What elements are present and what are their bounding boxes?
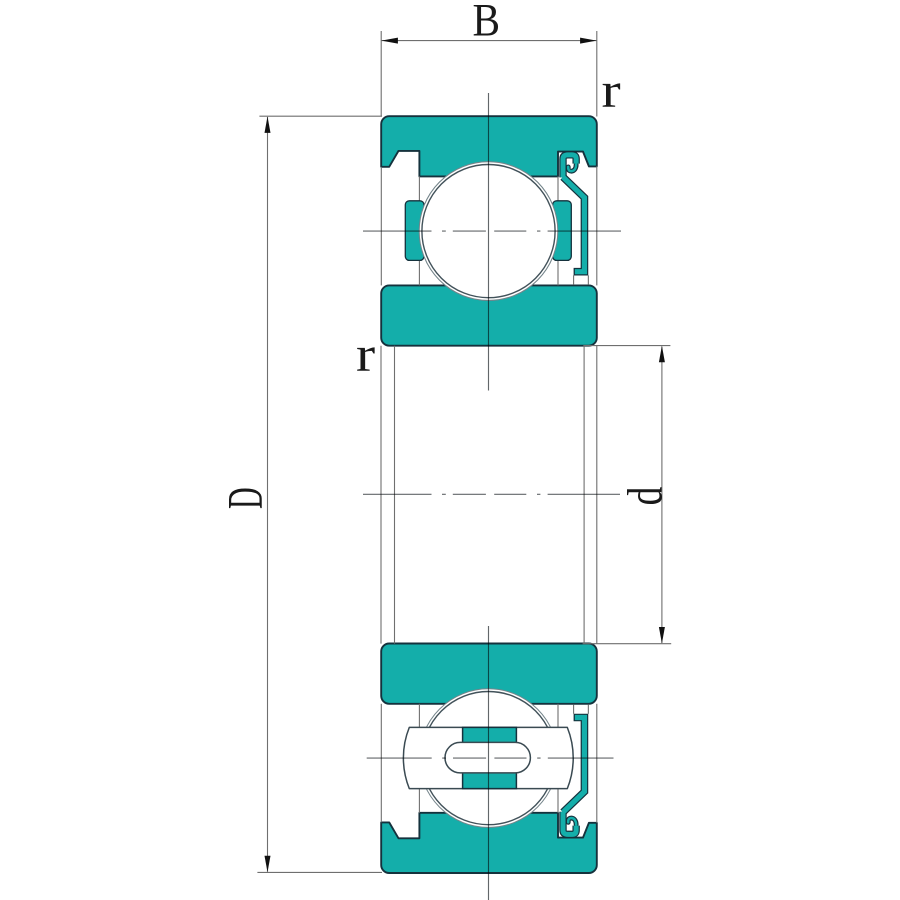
svg-text:r: r xyxy=(602,62,621,118)
svg-text:d: d xyxy=(617,487,672,506)
svg-text:B: B xyxy=(473,0,501,46)
svg-text:D: D xyxy=(217,487,273,509)
svg-text:r: r xyxy=(356,326,375,382)
